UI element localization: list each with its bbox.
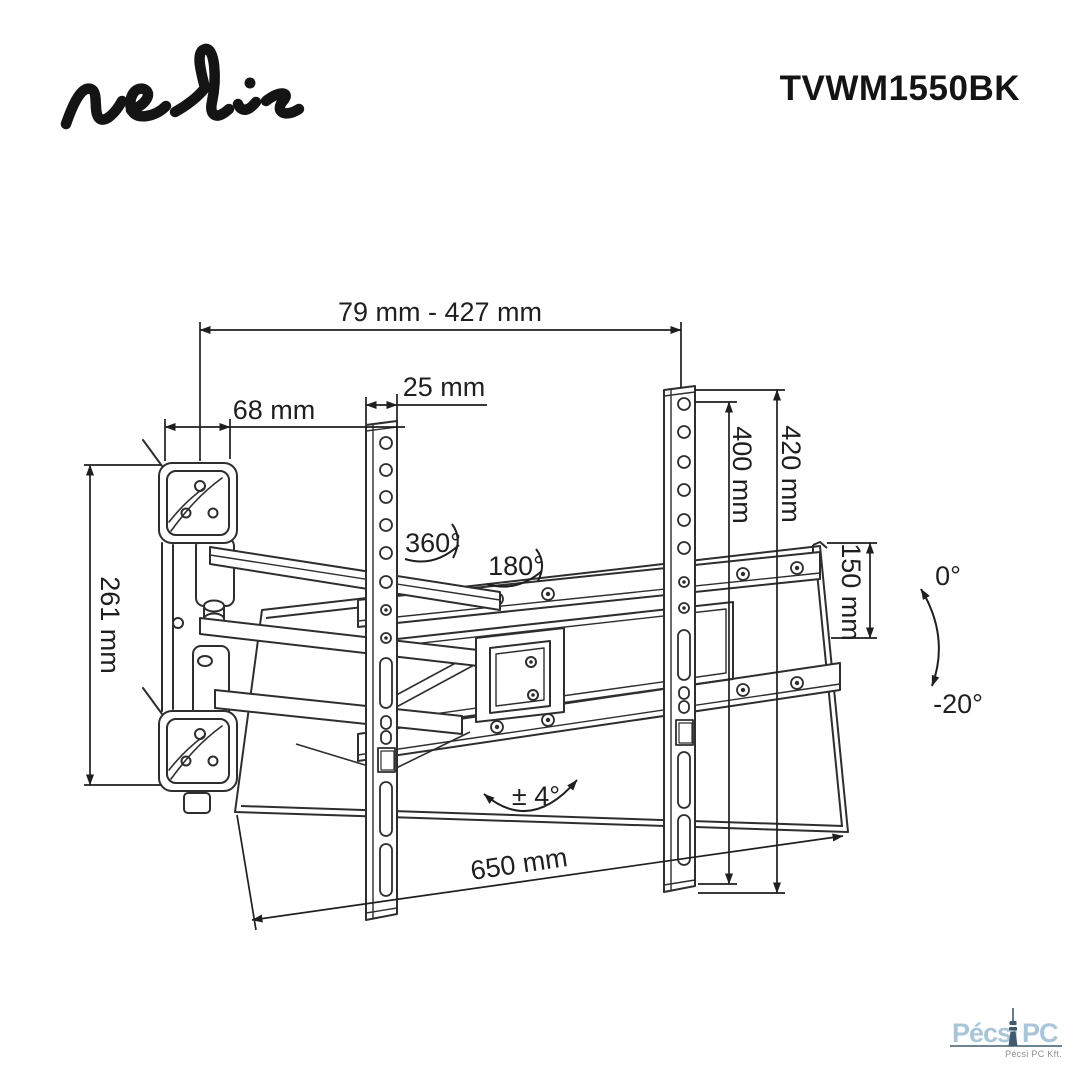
wall-bracket-top <box>159 463 237 543</box>
arm-upper-line <box>210 555 500 600</box>
dimension-label-bracket-side-height: 150 mm <box>836 543 866 641</box>
angle-label-level-adjustment: ± 4° <box>512 781 560 811</box>
angle-label-tilt-max: 0° <box>935 561 961 591</box>
watermark-brand-primary: Pécsi <box>952 1018 1018 1048</box>
angle-label-tilt-min: -20° <box>933 689 983 719</box>
dimension-label-rail-width: 25 mm <box>403 372 486 402</box>
angle-label-swivel-joint: 360° <box>405 528 461 558</box>
watermark-brand-secondary: PC <box>1022 1018 1058 1048</box>
model-number: TVWM1550BK <box>780 69 1020 108</box>
wall-bracket-foot <box>184 793 210 813</box>
dimension-label-bracket-width: 650 mm <box>469 842 570 886</box>
watermark-company: Pécsi PC Kft. <box>1005 1049 1062 1059</box>
nedis-logo <box>66 49 299 124</box>
watermark: Pécsi PC Pécsi PC Kft. <box>950 1008 1062 1059</box>
wall-bracket-bottom <box>159 711 237 791</box>
dimension-label-rail-height: 420 mm <box>776 425 806 523</box>
logo-letter-s <box>266 93 299 113</box>
vesa-rail-left <box>366 421 397 920</box>
angle-label-swivel-plate: 180° <box>488 551 544 581</box>
dimension-label-wall-plate-depth: 68 mm <box>233 395 316 425</box>
dim-extension-lines-width <box>237 815 256 930</box>
logo-letter-n <box>66 89 122 124</box>
logo-letter-e <box>130 89 166 117</box>
dimension-label-wall-plate-height: 261 mm <box>95 576 125 674</box>
vesa-rail-right <box>664 386 695 892</box>
diagram-canvas: TVWM1550BK <box>0 0 1080 1080</box>
logo-i-dot <box>245 78 256 89</box>
arc-tilt <box>921 589 939 686</box>
vesa-adapter <box>476 628 564 722</box>
dimension-label-extension-range: 79 mm - 427 mm <box>338 297 542 327</box>
dimension-label-vesa-hole-height: 400 mm <box>727 426 757 524</box>
logo-letter-d <box>175 49 229 116</box>
logo-letter-i <box>238 102 256 110</box>
product-diagram-page: TVWM1550BK <box>0 0 1080 1080</box>
